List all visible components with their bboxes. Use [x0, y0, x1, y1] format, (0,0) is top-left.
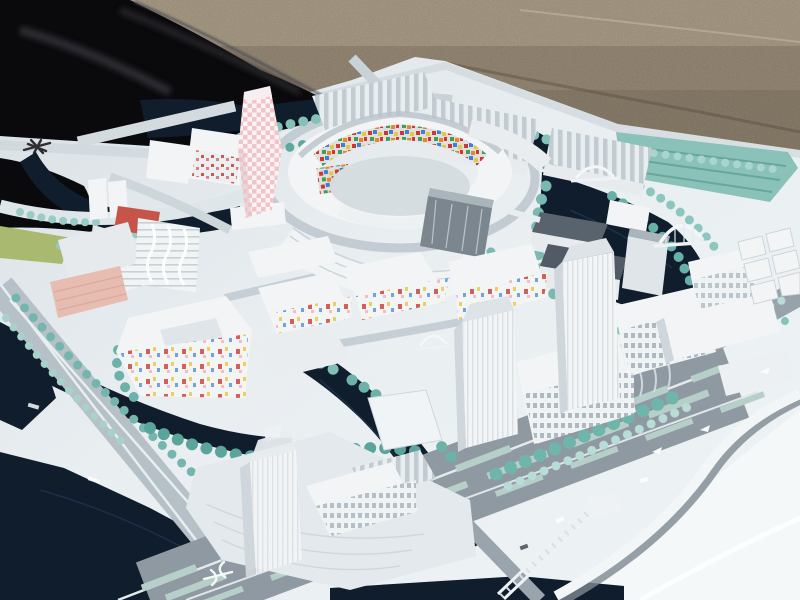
glass-slab — [420, 188, 494, 258]
west-tower-1 — [88, 178, 108, 220]
model-photo-canvas — [0, 0, 800, 600]
tower-west — [454, 296, 518, 452]
tower-east — [554, 238, 620, 414]
photo-of-architectural-model — [0, 0, 800, 600]
